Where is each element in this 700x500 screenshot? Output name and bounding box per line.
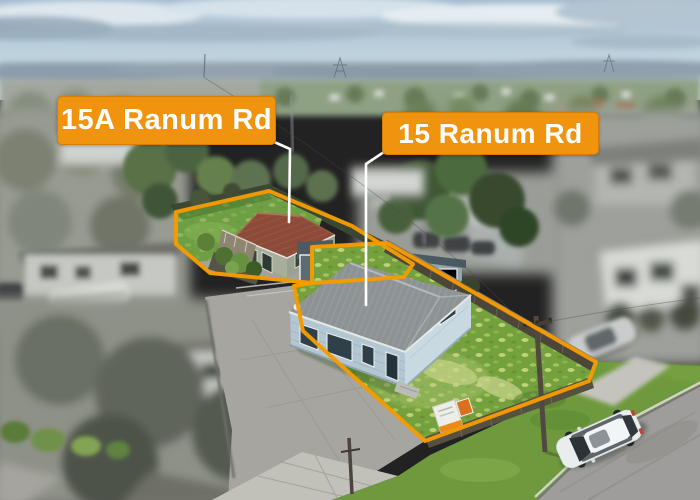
photo-scene [0,0,700,500]
aerial-property-photo: 15A Ranum Rd 15 Ranum Rd [0,0,700,500]
white-building-back [350,166,426,199]
property-label-15: 15 Ranum Rd [382,112,599,155]
property-label-15a: 15A Ranum Rd [57,96,276,145]
